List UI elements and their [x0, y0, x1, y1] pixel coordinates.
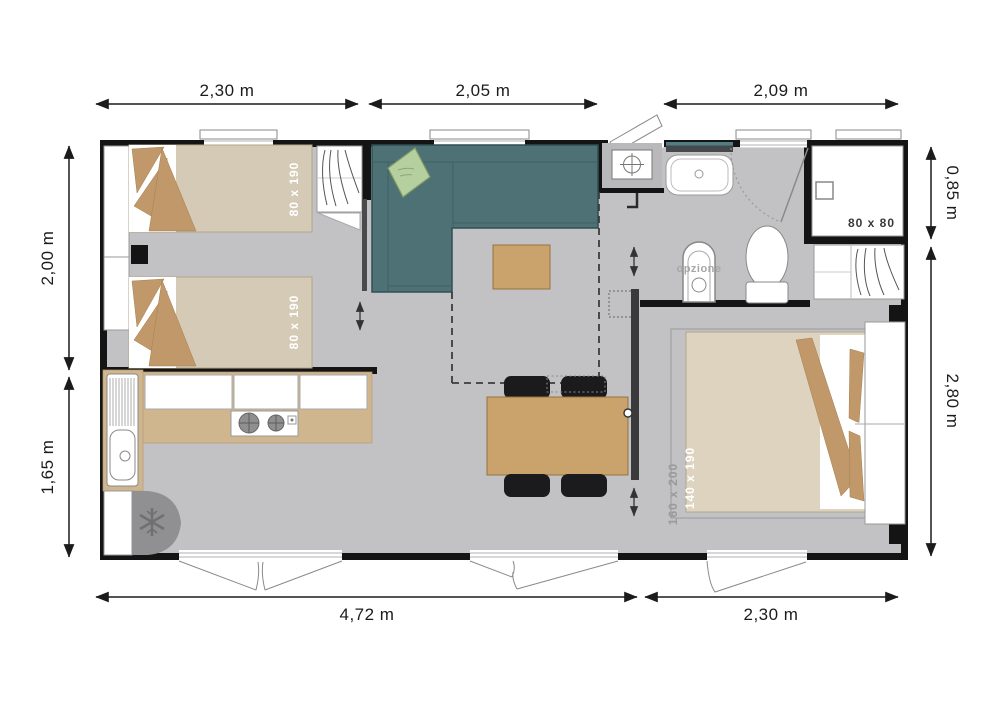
casement-leaf	[707, 561, 806, 592]
shower-size-label: 80 x 80	[848, 216, 895, 230]
window-bathroom	[736, 130, 811, 148]
casement-leaves	[470, 561, 618, 589]
dimension-label: 2,00 m	[38, 231, 57, 286]
toilet-bowl	[746, 226, 788, 288]
dimension-right-1: 0,85 m	[931, 147, 962, 239]
basin-drain	[695, 170, 703, 178]
sink-drain	[120, 451, 130, 461]
double-bed-footprint-label: 160 x 200	[666, 463, 680, 525]
single-bed-1: 80 x 190	[129, 145, 312, 232]
sliding-door-panel	[631, 289, 639, 480]
bedroom-closet	[814, 245, 904, 299]
stove-knob-dot	[291, 419, 294, 422]
dimension-label: 2,05 m	[456, 81, 511, 100]
nightstand	[131, 245, 148, 264]
window-frame	[836, 130, 901, 139]
coffee-table	[493, 245, 550, 289]
window-dining	[470, 550, 618, 589]
fridge-niche	[104, 491, 132, 555]
window-kitchen-double	[179, 550, 342, 590]
washbasin	[666, 155, 733, 195]
wall-utility-bottom	[596, 188, 664, 193]
dimension-label: 1,65 m	[38, 440, 57, 495]
window-shower-high	[836, 130, 901, 139]
fridge	[104, 491, 181, 555]
dimension-label: 2,30 m	[200, 81, 255, 100]
counter-cabinet	[300, 375, 367, 409]
window-frame	[200, 130, 277, 139]
dimension-bottom-1: 4,72 m	[96, 597, 637, 624]
dimension-left-1: 2,00 m	[38, 146, 69, 370]
dimension-right-2: 2,80 m	[931, 247, 962, 556]
headboard	[865, 322, 905, 524]
shower-drain	[816, 182, 833, 199]
kitchen-sink	[103, 370, 143, 491]
window-gap	[179, 550, 342, 560]
double-bed-size-label: 140 x 190	[683, 447, 697, 509]
window-gap	[470, 550, 618, 560]
window-double-bedroom	[707, 550, 807, 592]
counter-cabinet	[234, 375, 298, 409]
window-gap	[707, 550, 807, 560]
sliding-door-panel	[362, 199, 367, 291]
floorplan-page: 80 x 190 80 x 190	[0, 0, 1000, 707]
dimension-label: 2,30 m	[744, 605, 799, 624]
toilet-tank	[746, 282, 788, 303]
dimension-left-2: 1,65 m	[38, 377, 69, 557]
single-bed-2-size-label: 80 x 190	[287, 295, 301, 350]
dimension-top-2: 2,05 m	[369, 81, 597, 104]
window-above-vanity	[666, 142, 733, 152]
single-bed-1-size-label: 80 x 190	[287, 162, 301, 217]
bottom-wall-openings	[179, 550, 807, 592]
dimension-label: 2,09 m	[754, 81, 809, 100]
floorplan-drawing: 80 x 190 80 x 190	[0, 0, 1000, 707]
wardrobe-strip	[104, 146, 129, 330]
door-handle	[624, 409, 632, 417]
dimension-top-3: 2,09 m	[664, 81, 898, 104]
shower: 80 x 80	[812, 146, 903, 236]
bidet-drain	[692, 278, 706, 292]
dining-chair	[561, 474, 607, 497]
bidet-option-label: opzione	[676, 263, 721, 275]
vanity-shelf-teal-stripe	[666, 142, 733, 146]
dimension-label: 2,80 m	[943, 374, 962, 429]
dining-table	[487, 397, 628, 475]
double-bed: 140 x 190 160 x 200	[666, 322, 905, 525]
stove	[231, 411, 298, 436]
counter-cabinet	[145, 375, 232, 409]
dining-chair	[504, 376, 550, 399]
wall-below-shower	[804, 236, 905, 244]
dimension-label: 4,72 m	[340, 605, 395, 624]
single-bed-2: 80 x 190	[129, 277, 312, 368]
window-frame	[430, 130, 529, 139]
toilet	[746, 226, 788, 303]
dining-chair	[561, 376, 607, 399]
dimension-label: 0,85 m	[943, 166, 962, 221]
dimension-bottom-2: 2,30 m	[645, 597, 898, 624]
casement-leaves	[179, 561, 342, 590]
window-frame	[736, 130, 811, 139]
dimension-top-1: 2,30 m	[96, 81, 358, 104]
dining-chair	[504, 474, 550, 497]
